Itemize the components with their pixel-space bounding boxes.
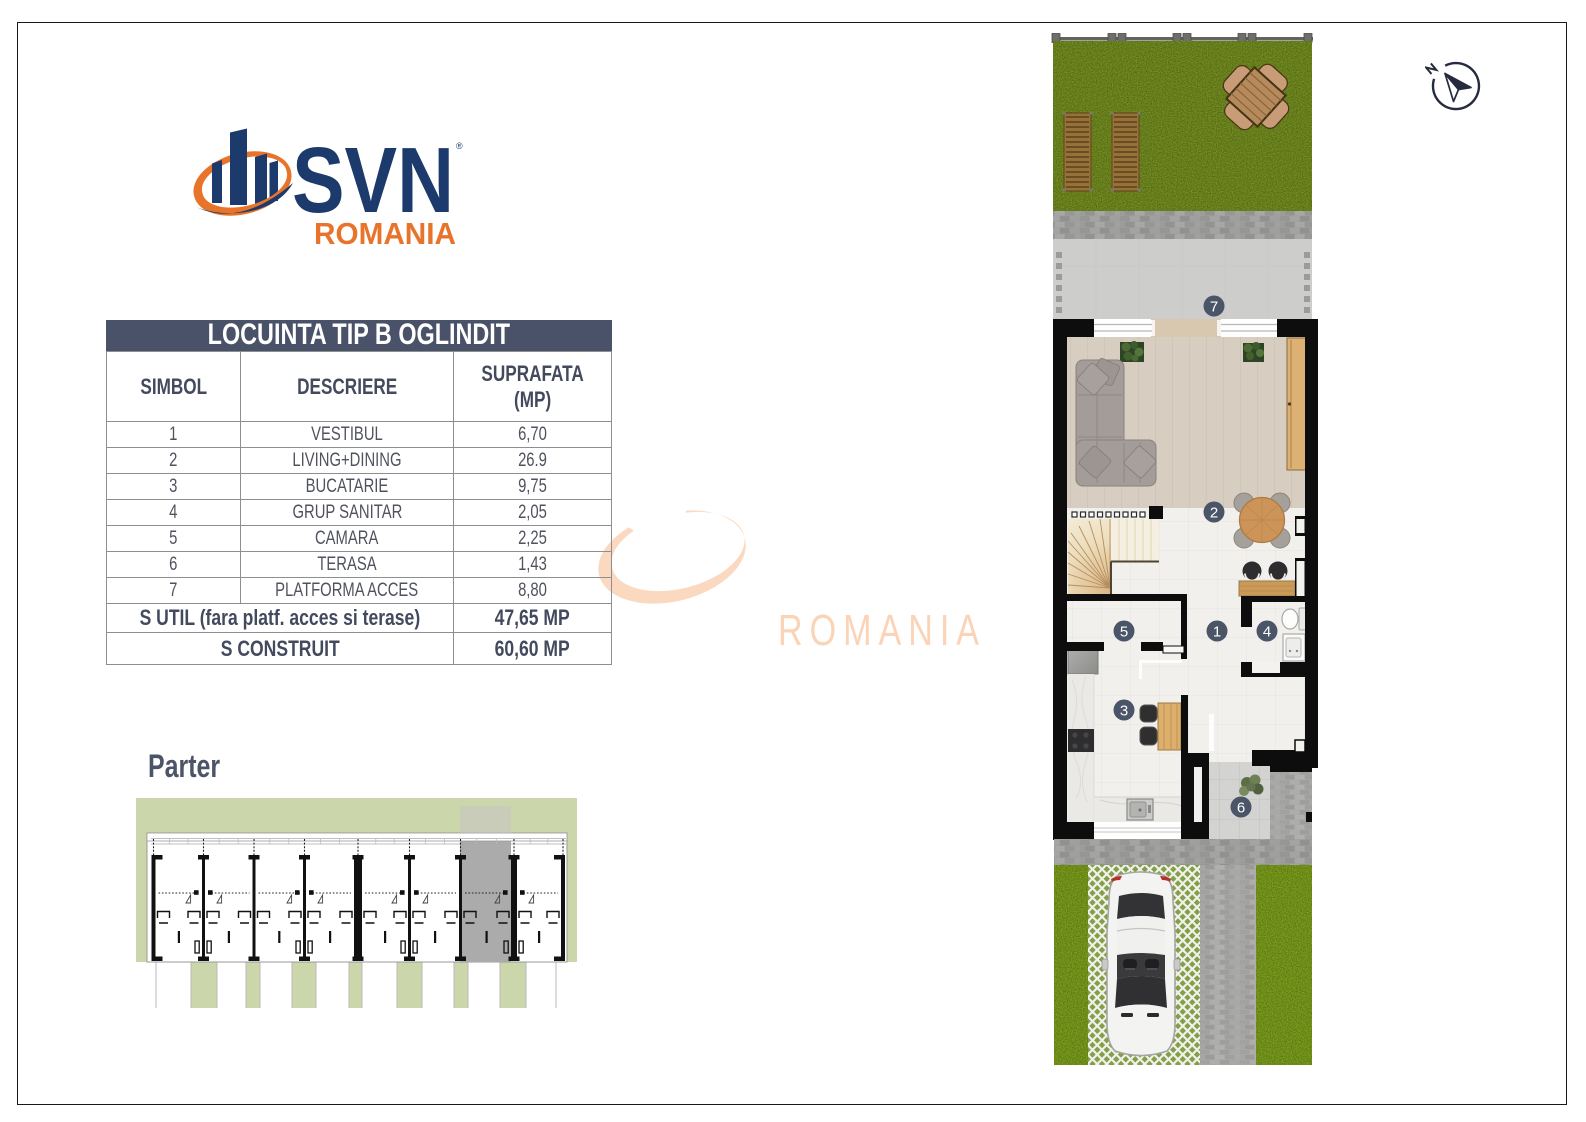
svg-text:3: 3: [1120, 703, 1128, 720]
svg-text:1: 1: [1213, 624, 1221, 641]
svg-text:7: 7: [1210, 299, 1218, 316]
svg-text:4: 4: [1263, 624, 1271, 641]
svg-text:2: 2: [1210, 505, 1218, 522]
svg-text:5: 5: [1120, 624, 1128, 641]
svg-text:6: 6: [1237, 800, 1245, 817]
